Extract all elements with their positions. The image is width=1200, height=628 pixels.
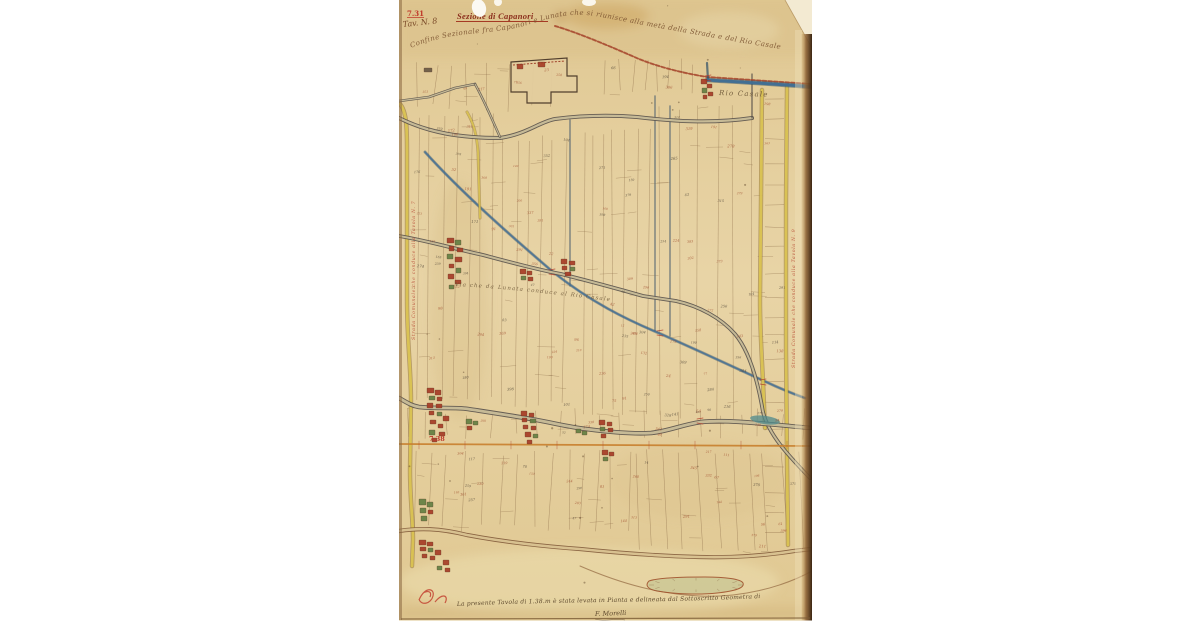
svg-text:332: 332 bbox=[705, 473, 712, 477]
svg-text:274: 274 bbox=[416, 263, 425, 269]
svg-text:171: 171 bbox=[471, 220, 478, 224]
svg-text:359: 359 bbox=[436, 127, 443, 132]
svg-text:363: 363 bbox=[764, 141, 770, 145]
svg-text:309: 309 bbox=[680, 360, 688, 364]
svg-text:23: 23 bbox=[543, 68, 549, 72]
svg-text:90: 90 bbox=[707, 408, 711, 412]
svg-text:180: 180 bbox=[462, 375, 469, 380]
svg-text:275: 275 bbox=[756, 411, 763, 415]
svg-text:91: 91 bbox=[491, 227, 496, 231]
svg-text:345: 345 bbox=[690, 466, 698, 471]
right-page-edge bbox=[801, 34, 812, 621]
svg-text:158: 158 bbox=[695, 328, 702, 333]
svg-text:257: 257 bbox=[467, 498, 476, 503]
svg-text:190: 190 bbox=[691, 341, 697, 345]
map-title: Sezione di Capanori bbox=[457, 11, 534, 21]
svg-text:91: 91 bbox=[622, 396, 627, 400]
svg-text:141: 141 bbox=[672, 412, 679, 417]
svg-text:342: 342 bbox=[655, 427, 663, 432]
svg-text:291: 291 bbox=[778, 286, 785, 290]
svg-text:356: 356 bbox=[735, 355, 741, 359]
svg-text:117: 117 bbox=[469, 457, 476, 461]
svg-text:256: 256 bbox=[719, 304, 728, 308]
left-page-edge bbox=[399, 0, 402, 620]
svg-text:379: 379 bbox=[751, 533, 757, 537]
svg-text:315: 315 bbox=[718, 199, 725, 203]
svg-text:373: 373 bbox=[716, 259, 722, 263]
svg-text:194: 194 bbox=[662, 75, 670, 79]
svg-text:356: 356 bbox=[531, 262, 538, 266]
cadastral-map-svg: 3563532172587169236619430626418027423919… bbox=[399, 0, 812, 628]
svg-text:69: 69 bbox=[463, 86, 467, 90]
svg-text:47: 47 bbox=[530, 283, 535, 287]
svg-text:217: 217 bbox=[705, 450, 712, 454]
svg-text:244: 244 bbox=[565, 479, 572, 483]
svg-text:353: 353 bbox=[422, 90, 428, 94]
svg-text:279: 279 bbox=[736, 191, 743, 195]
svg-text:191: 191 bbox=[711, 125, 718, 130]
page-background: 3563532172587169236619430626418027423919… bbox=[0, 0, 1200, 628]
svg-text:175: 175 bbox=[670, 340, 678, 344]
svg-text:290: 290 bbox=[575, 486, 582, 490]
svg-text:190: 190 bbox=[547, 355, 553, 359]
below-paper bbox=[399, 621, 812, 628]
svg-text:379: 379 bbox=[625, 193, 632, 198]
svg-text:296: 296 bbox=[642, 285, 649, 289]
svg-text:83: 83 bbox=[502, 318, 506, 322]
svg-text:81: 81 bbox=[600, 485, 605, 490]
svg-text:159: 159 bbox=[628, 178, 634, 182]
svg-text:230: 230 bbox=[476, 482, 484, 486]
svg-text:140: 140 bbox=[755, 423, 761, 427]
svg-text:144: 144 bbox=[620, 519, 627, 523]
svg-text:71: 71 bbox=[514, 80, 518, 84]
svg-text:337: 337 bbox=[527, 211, 535, 215]
svg-text:254: 254 bbox=[659, 239, 666, 243]
svg-text:313: 313 bbox=[631, 515, 637, 520]
svg-text:150: 150 bbox=[529, 471, 535, 475]
svg-text:165: 165 bbox=[435, 255, 441, 260]
surveyor-signature: F. Morelli bbox=[594, 609, 627, 618]
page-ref-red: 7.31 bbox=[407, 9, 424, 18]
svg-text:398: 398 bbox=[507, 387, 515, 392]
svg-text:381: 381 bbox=[537, 218, 543, 222]
svg-text:216: 216 bbox=[723, 405, 732, 409]
svg-text:369: 369 bbox=[499, 331, 507, 335]
section-ref-red: 7.38 bbox=[429, 435, 445, 443]
svg-text:311: 311 bbox=[467, 125, 473, 129]
svg-text:196: 196 bbox=[452, 132, 459, 137]
svg-text:394: 394 bbox=[463, 271, 469, 275]
svg-text:258: 258 bbox=[555, 73, 562, 77]
svg-text:77: 77 bbox=[703, 372, 707, 377]
svg-text:239: 239 bbox=[434, 262, 441, 266]
svg-text:14: 14 bbox=[644, 461, 648, 465]
svg-text:243: 243 bbox=[735, 334, 744, 338]
svg-text:291: 291 bbox=[515, 248, 523, 253]
svg-text:364: 364 bbox=[457, 451, 464, 455]
svg-text:168: 168 bbox=[602, 206, 608, 211]
svg-text:250: 250 bbox=[643, 392, 650, 396]
svg-text:191: 191 bbox=[464, 187, 471, 191]
left-road-label: Strada Comunale che conduce alla Tavola … bbox=[411, 201, 417, 340]
svg-text:196: 196 bbox=[754, 474, 760, 479]
svg-text:265: 265 bbox=[669, 156, 678, 161]
svg-text:291: 291 bbox=[682, 515, 690, 519]
svg-text:309: 309 bbox=[627, 277, 633, 282]
svg-text:12: 12 bbox=[621, 323, 625, 327]
svg-text:328: 328 bbox=[664, 413, 672, 418]
svg-text:176: 176 bbox=[414, 170, 420, 174]
svg-text:24: 24 bbox=[665, 373, 672, 378]
svg-text:394: 394 bbox=[780, 529, 787, 533]
svg-text:398: 398 bbox=[599, 212, 605, 217]
svg-text:304: 304 bbox=[739, 369, 747, 373]
svg-text:125: 125 bbox=[430, 239, 436, 243]
svg-text:211: 211 bbox=[758, 544, 766, 548]
svg-text:319: 319 bbox=[501, 461, 507, 465]
svg-text:319: 319 bbox=[685, 127, 693, 131]
map-scan: 3563532172587169236619430626418027423919… bbox=[399, 0, 812, 628]
svg-text:96: 96 bbox=[574, 338, 579, 342]
svg-text:378: 378 bbox=[455, 152, 461, 157]
svg-text:210: 210 bbox=[575, 348, 582, 352]
svg-text:203: 203 bbox=[574, 501, 581, 505]
svg-text:52: 52 bbox=[562, 430, 566, 434]
svg-text:163: 163 bbox=[454, 490, 460, 495]
svg-text:271: 271 bbox=[598, 166, 606, 170]
svg-text:279: 279 bbox=[776, 409, 783, 413]
svg-text:306: 306 bbox=[666, 85, 674, 89]
svg-text:54: 54 bbox=[775, 419, 780, 423]
svg-text:98: 98 bbox=[621, 290, 625, 294]
svg-text:132: 132 bbox=[640, 351, 647, 356]
svg-text:68: 68 bbox=[657, 432, 662, 436]
svg-text:260: 260 bbox=[632, 474, 640, 479]
svg-text:120: 120 bbox=[513, 164, 519, 168]
svg-text:47: 47 bbox=[571, 516, 576, 520]
svg-text:278: 278 bbox=[726, 143, 735, 148]
svg-text:111: 111 bbox=[723, 453, 729, 458]
svg-text:61: 61 bbox=[778, 522, 782, 526]
svg-text:236: 236 bbox=[598, 371, 607, 375]
svg-text:114: 114 bbox=[772, 340, 779, 345]
svg-text:312: 312 bbox=[674, 115, 680, 119]
svg-text:301: 301 bbox=[509, 224, 515, 228]
svg-text:313: 313 bbox=[429, 356, 436, 361]
svg-text:144: 144 bbox=[716, 500, 722, 505]
edge-highlight bbox=[795, 30, 802, 620]
svg-text:361: 361 bbox=[460, 492, 467, 497]
svg-text:352: 352 bbox=[543, 154, 551, 159]
svg-text:224: 224 bbox=[672, 239, 680, 243]
svg-text:200: 200 bbox=[516, 198, 523, 202]
svg-text:369: 369 bbox=[481, 176, 487, 180]
svg-text:304: 304 bbox=[639, 330, 646, 334]
svg-text:198: 198 bbox=[764, 102, 772, 107]
svg-text:272: 272 bbox=[706, 308, 713, 312]
svg-text:138: 138 bbox=[776, 349, 784, 353]
svg-text:104: 104 bbox=[748, 292, 754, 297]
svg-text:202: 202 bbox=[686, 256, 694, 261]
svg-text:224: 224 bbox=[550, 349, 557, 354]
svg-text:260: 260 bbox=[479, 418, 486, 423]
svg-text:101: 101 bbox=[563, 402, 570, 407]
svg-text:383: 383 bbox=[687, 239, 694, 244]
svg-text:378: 378 bbox=[753, 483, 761, 488]
